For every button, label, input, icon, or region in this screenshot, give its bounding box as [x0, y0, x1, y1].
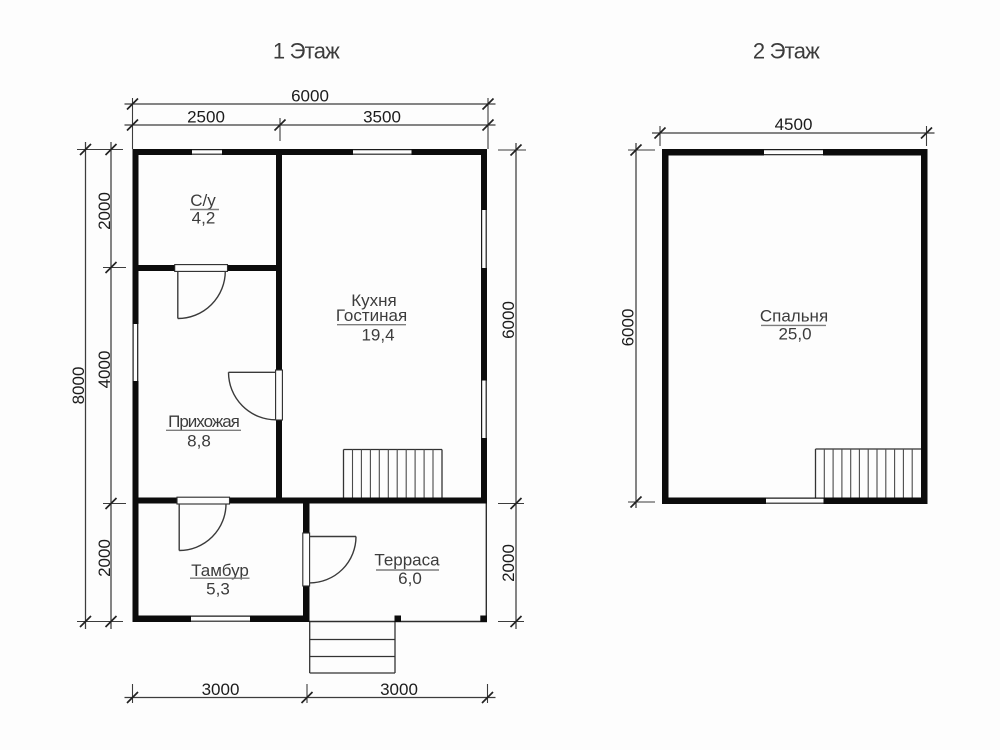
svg-text:4000: 4000 [95, 351, 114, 389]
svg-text:5,3: 5,3 [206, 580, 230, 599]
svg-text:3000: 3000 [380, 680, 418, 699]
svg-text:19,4: 19,4 [361, 326, 394, 345]
svg-text:4500: 4500 [775, 115, 813, 134]
svg-text:6000: 6000 [499, 301, 518, 339]
svg-text:Прихожая: Прихожая [168, 412, 240, 431]
svg-text:4,2: 4,2 [192, 209, 216, 228]
svg-text:6000: 6000 [291, 87, 329, 106]
svg-text:6,0: 6,0 [398, 569, 422, 588]
svg-text:25,0: 25,0 [778, 325, 811, 344]
svg-text:2000: 2000 [499, 544, 518, 582]
svg-text:3500: 3500 [363, 108, 401, 127]
svg-text:2500: 2500 [187, 108, 225, 127]
svg-text:Спальня: Спальня [760, 307, 828, 326]
svg-text:Гостиная: Гостиная [336, 306, 407, 325]
svg-text:Терраса: Терраса [374, 551, 440, 570]
svg-text:6000: 6000 [619, 309, 638, 347]
svg-text:2 Этаж: 2 Этаж [753, 39, 820, 64]
svg-text:2000: 2000 [95, 192, 114, 230]
svg-text:С/у: С/у [190, 191, 216, 210]
svg-text:Тамбур: Тамбур [191, 561, 249, 580]
svg-text:1 Этаж: 1 Этаж [273, 39, 340, 64]
svg-text:8000: 8000 [69, 367, 88, 405]
svg-text:2000: 2000 [95, 539, 114, 577]
svg-text:3000: 3000 [202, 680, 240, 699]
svg-text:8,8: 8,8 [187, 432, 211, 451]
